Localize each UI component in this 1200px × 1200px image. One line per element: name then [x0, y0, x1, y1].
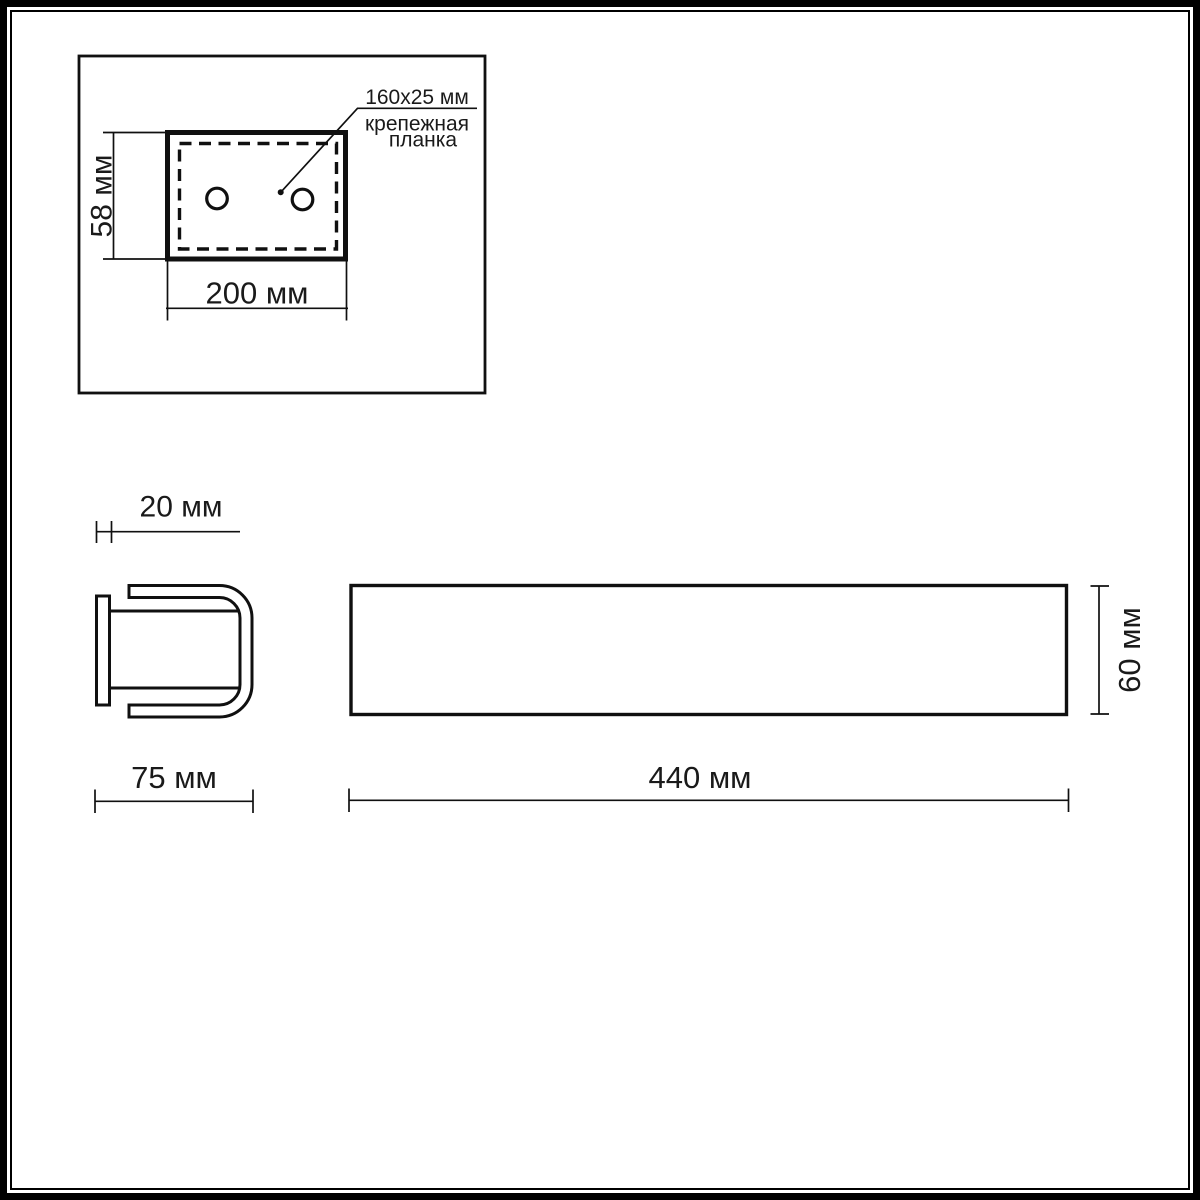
front-body-outline	[351, 586, 1067, 715]
mounting-hole-left	[207, 188, 228, 209]
technical-drawing: 160x25 мм крепежная планка 58 мм 200 мм …	[0, 0, 1200, 1200]
dim-75-label: 75 мм	[131, 760, 217, 795]
dim-60-label: 60 мм	[1112, 607, 1147, 693]
annotation-size-label: 160x25 мм	[365, 86, 469, 109]
mounting-hole-right	[292, 189, 313, 210]
annotation-name-line2: планка	[389, 129, 458, 152]
side-wall-plate	[97, 596, 110, 705]
dim-440-label: 440 мм	[649, 760, 752, 795]
dim-20-label: 20 мм	[140, 491, 223, 524]
front-view: 60 мм 440 мм	[349, 586, 1147, 813]
side-view: 20 мм 75 мм	[95, 491, 253, 814]
drawing-canvas: 160x25 мм крепежная планка 58 мм 200 мм …	[0, 0, 1200, 1200]
side-body	[110, 611, 246, 688]
dim-58-label: 58 мм	[86, 155, 119, 238]
dim-200-label: 200 мм	[206, 276, 309, 311]
top-view: 160x25 мм крепежная планка 58 мм 200 мм	[79, 56, 485, 393]
